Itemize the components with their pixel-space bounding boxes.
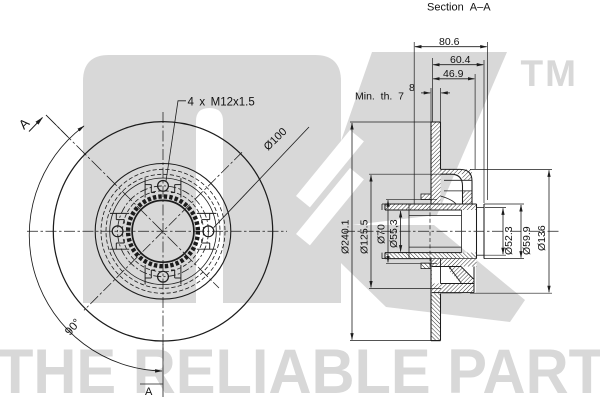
svg-text:90°: 90° <box>63 317 83 338</box>
svg-text:Ø59.9: Ø59.9 <box>521 226 533 255</box>
svg-text:TM: TM <box>521 53 578 94</box>
svg-text:Ø240.1: Ø240.1 <box>340 219 352 254</box>
svg-text:4 x M12x1.5: 4 x M12x1.5 <box>188 97 255 109</box>
svg-text:Ø55,3: Ø55,3 <box>388 219 400 248</box>
svg-text:60.4: 60.4 <box>450 54 471 66</box>
svg-text:Min. th. 7: Min. th. 7 <box>355 91 404 103</box>
svg-text:Ø70: Ø70 <box>376 224 388 244</box>
svg-text:8: 8 <box>409 82 415 94</box>
svg-text:A: A <box>145 386 153 398</box>
svg-text:80.6: 80.6 <box>439 36 460 48</box>
svg-text:46.9: 46.9 <box>443 68 464 80</box>
svg-text:Ø52.3: Ø52.3 <box>503 226 515 255</box>
svg-text:A: A <box>16 115 33 132</box>
svg-text:THE RELIABLE PART: THE RELIABLE PART <box>0 337 600 400</box>
svg-text:Section A–A: Section A–A <box>427 2 491 14</box>
svg-text:Ø136: Ø136 <box>536 225 548 251</box>
svg-text:Ø125.5: Ø125.5 <box>359 219 371 254</box>
